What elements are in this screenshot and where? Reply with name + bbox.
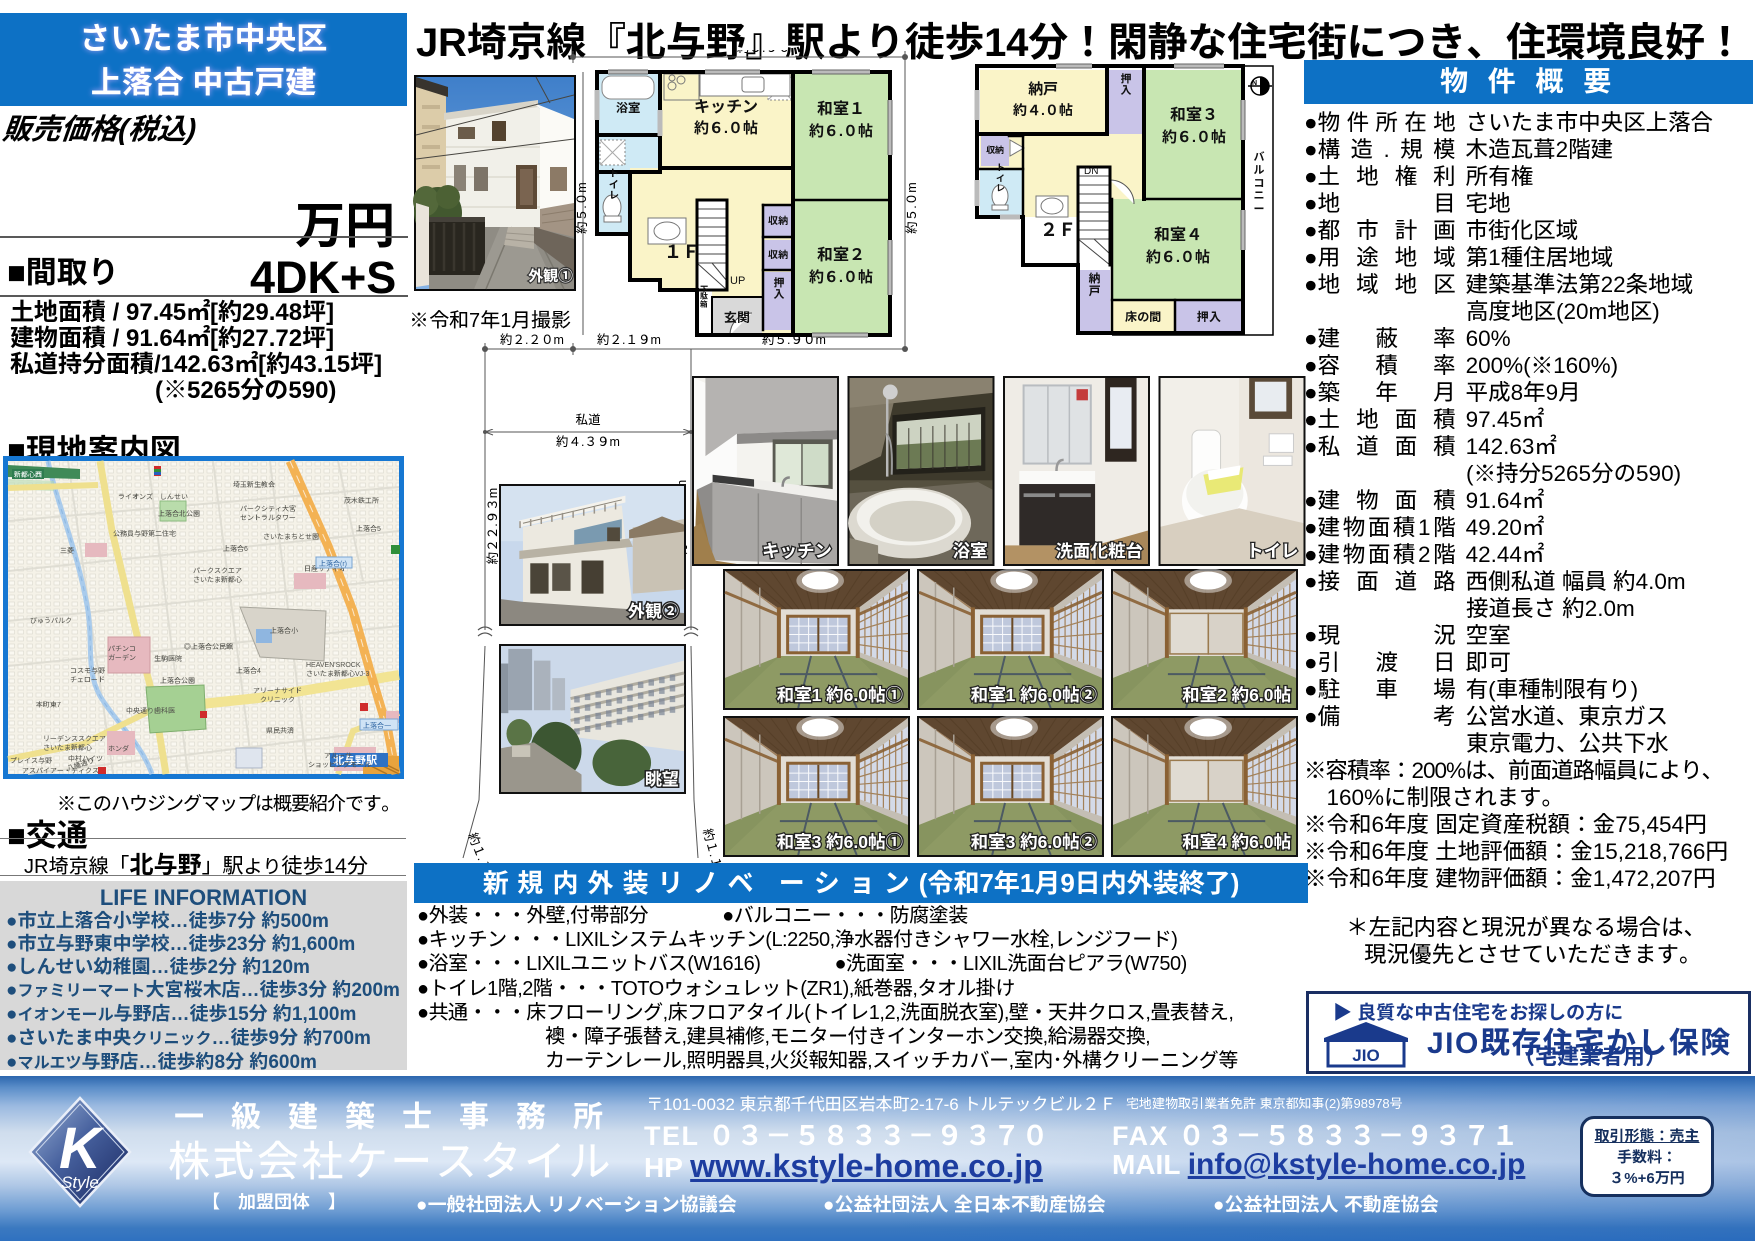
svg-text:Style: Style [61, 1173, 99, 1192]
svg-text:約５.９０m: 約５.９０m [736, 50, 801, 55]
svg-text:外観②: 外観② [627, 602, 679, 621]
svg-text:びゅうパルク: びゅうパルク [30, 617, 72, 625]
svg-text:プレイス与野: プレイス与野 [10, 756, 53, 765]
svg-text:床の間: 床の間 [1125, 310, 1161, 324]
svg-text:新都心西: 新都心西 [13, 470, 42, 479]
svg-text:アスパイアー・ティクス: アスパイアー・ティクス [22, 767, 99, 775]
svg-text:上落合北公園: 上落合北公園 [158, 509, 201, 518]
svg-text:◎上落合公民館: ◎上落合公民館 [184, 642, 233, 651]
svg-text:キッチン: キッチン [694, 98, 758, 116]
svg-text:外観①: 外観① [528, 267, 573, 285]
svg-text:パークシティ大宮: パークシティ大宮 [240, 505, 296, 513]
svg-text:さいたま新都心: さいたま新都心 [43, 743, 93, 752]
svg-text:上落合公園: 上落合公園 [160, 676, 196, 685]
svg-text:UP: UP [730, 275, 745, 287]
svg-text:N: N [1252, 80, 1257, 87]
svg-text:上落合5: 上落合5 [356, 525, 381, 533]
svg-text:さいたま新都心: さいたま新都心 [193, 575, 243, 584]
svg-text:チェロード: チェロード [70, 676, 105, 684]
svg-text:DN: DN [1084, 166, 1098, 177]
svg-text:和室4 約6.0帖: 和室4 約6.0帖 [1182, 832, 1291, 852]
svg-text:約６.０帖: 約６.０帖 [1146, 249, 1210, 266]
svg-text:私道: 私道 [575, 413, 601, 427]
svg-text:約６.０帖: 約６.０帖 [809, 269, 873, 286]
svg-text:茂木鉄工所: 茂木鉄工所 [344, 496, 379, 505]
svg-text:ライオンズ しんせい: ライオンズ しんせい [118, 492, 188, 501]
svg-text:眺望: 眺望 [645, 770, 679, 789]
svg-text:本町東7: 本町東7 [36, 701, 61, 709]
svg-text:約２.１９m: 約２.１９m [596, 333, 661, 347]
svg-text:ガーデン: ガーデン [108, 653, 136, 662]
svg-text:生駒医院: 生駒医院 [154, 654, 182, 663]
svg-text:バルコニー: バルコニー [1252, 150, 1265, 215]
svg-text:セントラルタワー: セントラルタワー [240, 514, 296, 522]
svg-text:浴室: 浴室 [953, 541, 988, 561]
svg-text:クリニック: クリニック [260, 696, 295, 704]
svg-text:JIO: JIO [1352, 1046, 1379, 1065]
svg-text:納戸: 納戸 [1028, 81, 1058, 98]
svg-text:アルーサ: アルーサ [324, 752, 352, 760]
svg-text:ショッピングモール: ショッピングモール [308, 760, 371, 769]
svg-text:約６.０帖: 約６.０帖 [694, 120, 758, 137]
svg-text:HEAVEN'SROCK: HEAVEN'SROCK [306, 662, 361, 669]
svg-text:パチンコ: パチンコ [108, 645, 136, 653]
svg-text:上落合4: 上落合4 [236, 667, 261, 675]
svg-text:約４.３９m: 約４.３９m [555, 435, 620, 449]
svg-text:中央通り歯科医: 中央通り歯科医 [126, 706, 176, 715]
svg-text:コスモ与野: コスモ与野 [70, 666, 106, 675]
svg-text:公務員与野第二住宅: 公務員与野第二住宅 [113, 529, 176, 538]
svg-text:和室2 約6.0帖: 和室2 約6.0帖 [1182, 685, 1291, 705]
svg-text:納戸: 納戸 [1087, 272, 1101, 296]
svg-text:約５.０m: 約５.０m [905, 182, 919, 234]
svg-text:埼玉新生教会: 埼玉新生教会 [233, 480, 276, 489]
svg-text:和室２: 和室２ [817, 246, 865, 264]
svg-text:和室1 約6.0帖①: 和室1 約6.0帖① [777, 685, 903, 705]
svg-text:２Ｆ: ２Ｆ [1040, 220, 1076, 240]
svg-text:ホンダ: ホンダ [108, 744, 129, 753]
svg-text:収納: 収納 [986, 145, 1004, 155]
svg-text:約４.０帖: 約４.０帖 [1013, 102, 1073, 118]
svg-text:和室3 約6.0帖①: 和室3 約6.0帖① [777, 832, 903, 852]
svg-text:収納: 収納 [768, 249, 788, 261]
svg-text:約５.０m: 約５.０m [575, 182, 589, 234]
svg-text:パークスクエア: パークスクエア [193, 567, 242, 575]
svg-text:アリーナサイド: アリーナサイド [253, 687, 302, 695]
svg-text:キッチン: キッチン [762, 541, 832, 561]
svg-text:さいたまちとせ園: さいたまちとせ園 [263, 532, 320, 541]
svg-text:下駄箱: 下駄箱 [700, 284, 709, 309]
svg-text:和室３: 和室３ [1170, 106, 1218, 124]
svg-text:上落合(r): 上落合(r) [319, 560, 347, 568]
svg-text:約６.０帖: 約６.０帖 [1162, 129, 1226, 146]
svg-text:洗面化粧台: 洗面化粧台 [1056, 541, 1144, 561]
svg-text:トイレ: トイレ [995, 163, 1005, 193]
svg-text:※令和7年1月撮影: ※令和7年1月撮影 [409, 309, 571, 332]
svg-text:トイレ: トイレ [1246, 541, 1299, 561]
svg-text:三菱: 三菱 [60, 547, 74, 555]
svg-text:リーデンススクエア: リーデンススクエア [43, 735, 106, 743]
svg-text:上落合一: 上落合一 [363, 722, 391, 730]
svg-text:収納: 収納 [768, 215, 788, 227]
svg-text:約２２.９３m: 約２２.９３m [486, 488, 500, 565]
svg-text:押入: 押入 [1197, 310, 1221, 324]
svg-text:県民共済: 県民共済 [266, 727, 294, 735]
svg-text:約６.０帖: 約６.０帖 [809, 123, 873, 140]
svg-text:和室1 約6.0帖②: 和室1 約6.0帖② [971, 685, 1097, 705]
svg-text:１Ｆ: １Ｆ [664, 242, 700, 262]
svg-text:和室４: 和室４ [1154, 226, 1202, 244]
svg-text:約２.２０m: 約２.２０m [499, 333, 564, 347]
svg-text:上落合6: 上落合6 [223, 545, 248, 553]
svg-text:和室3 約6.0帖②: 和室3 約6.0帖② [971, 832, 1097, 852]
svg-text:押入: 押入 [1119, 73, 1132, 95]
svg-text:玄関: 玄関 [724, 310, 750, 325]
svg-text:押入: 押入 [772, 277, 785, 299]
svg-text:K: K [59, 1116, 105, 1181]
svg-text:和室１: 和室１ [817, 100, 865, 118]
svg-text:浴室: 浴室 [616, 101, 641, 115]
svg-text:トイレ: トイレ [607, 168, 619, 201]
svg-text:上落合小: 上落合小 [270, 627, 298, 635]
svg-text:さいたま新都心VJ-3: さいたま新都心VJ-3 [306, 669, 369, 678]
svg-text:約１.１０m: 約１.１０m [465, 830, 502, 865]
